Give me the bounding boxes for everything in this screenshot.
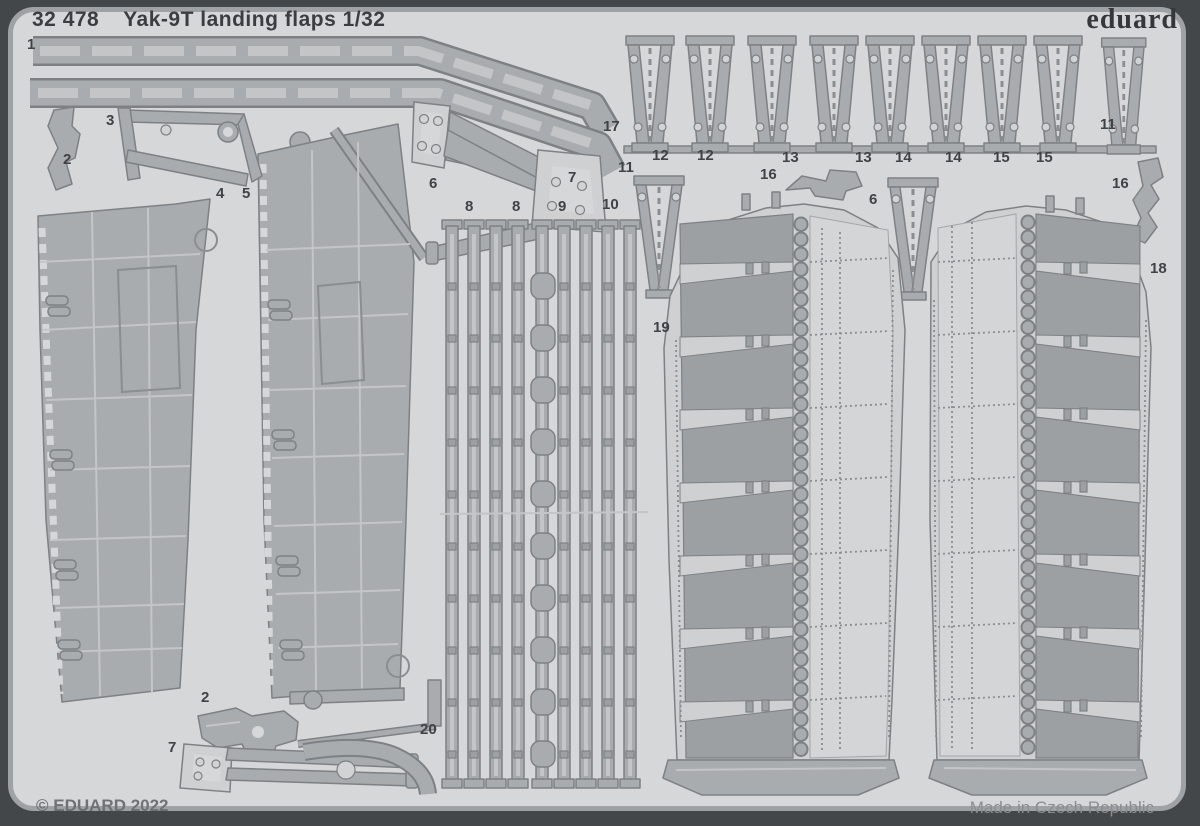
etched-parts-graphic (0, 0, 1200, 826)
part-19-flap-assembly (663, 192, 905, 795)
part-18-flap-assembly (929, 196, 1151, 795)
part-16-bracket-left (786, 170, 862, 200)
part-8-9-10-stiffener-strips (440, 220, 648, 788)
part-4-flap-skin (38, 199, 217, 702)
sheet-header: 32 478 Yak-9T landing flaps 1/32 (32, 8, 385, 32)
part-2-bracket-top (48, 107, 80, 190)
sheet-title: Yak-9T landing flaps 1/32 (123, 8, 385, 31)
eduard-logo: eduard (1086, 4, 1178, 36)
photo-etch-fret-photo: 32 478 Yak-9T landing flaps 1/32 eduard … (0, 0, 1200, 826)
copyright-text: © EDUARD 2022 (36, 796, 169, 816)
part-12-15-rib-fan-row (624, 36, 1156, 154)
sheet-code: 32 478 (32, 8, 99, 31)
part-3-bracket-assembly (118, 108, 262, 186)
part-5-flap-skin (258, 124, 424, 698)
made-in-text: Made in Czech Republic (970, 798, 1154, 818)
part-11-small-fan (634, 176, 684, 298)
